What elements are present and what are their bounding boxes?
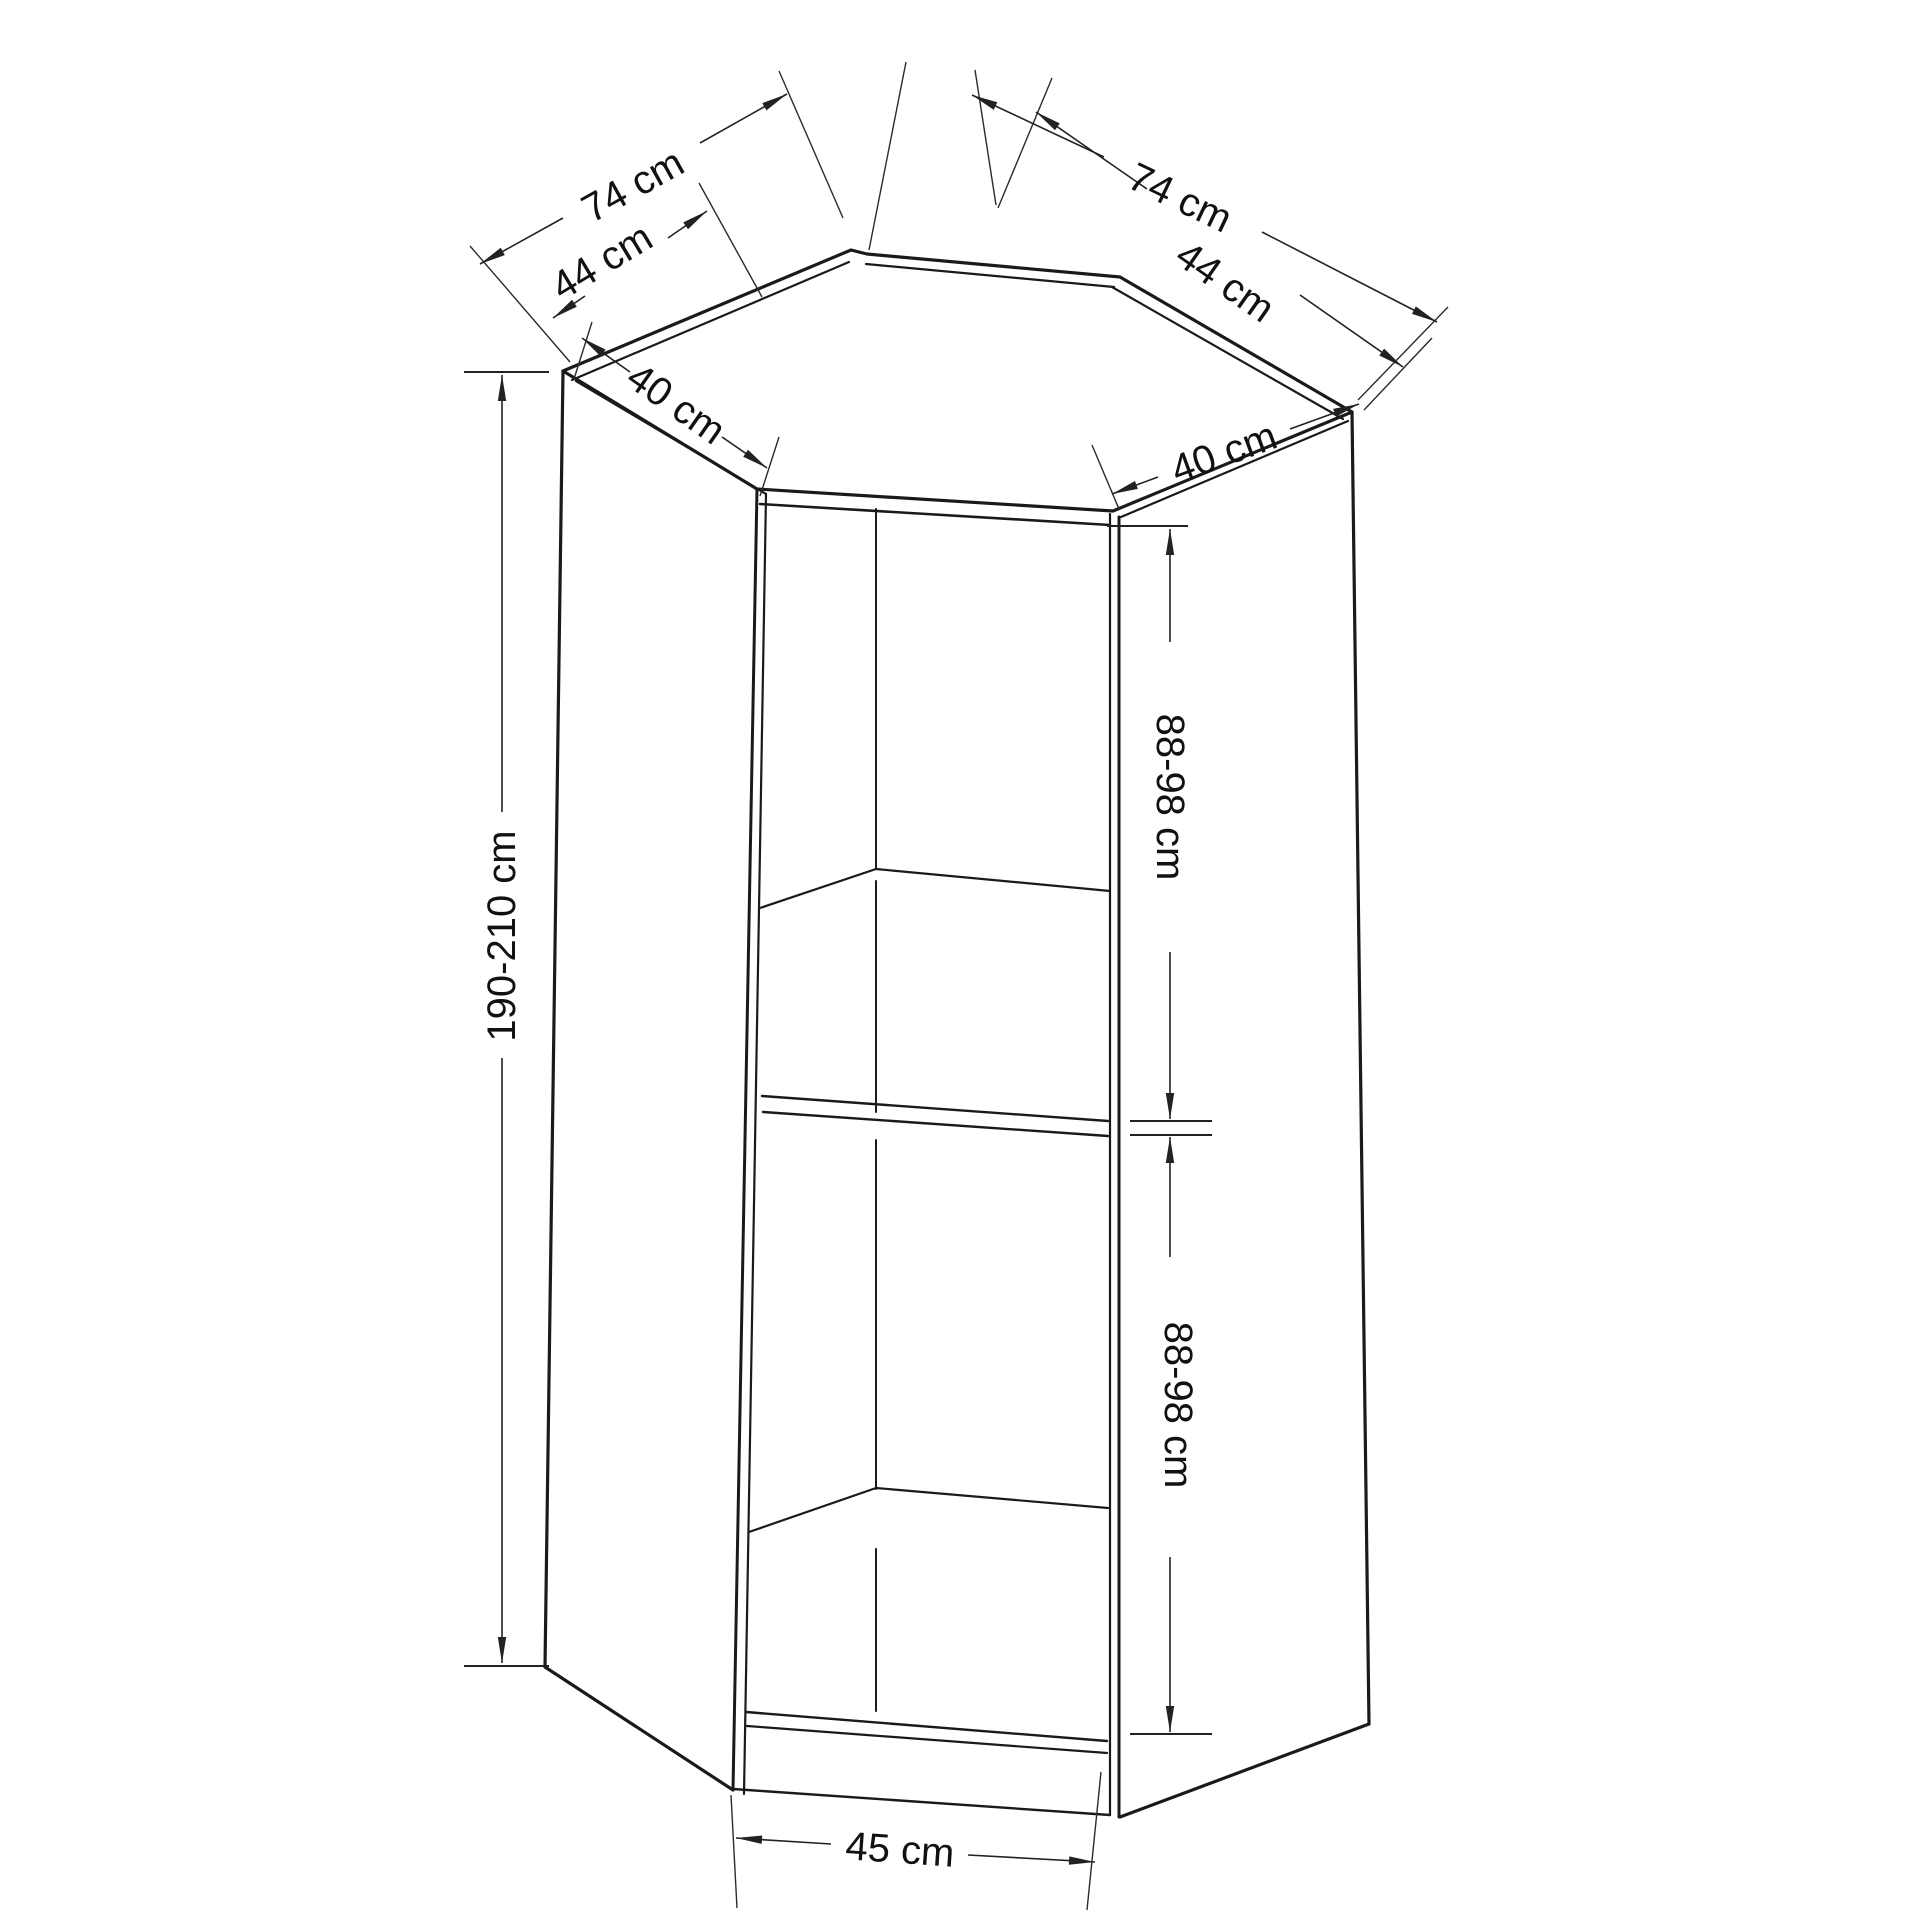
front-left-corner-inner <box>744 495 766 1794</box>
plinth-bottom-edge <box>733 1789 1110 1815</box>
dimline-44-right-b <box>1300 295 1403 367</box>
extension-40-left-bottom <box>760 437 779 496</box>
bottom-panel-thickness-edge <box>747 1726 1107 1753</box>
extension-back-corner-left-a <box>779 71 843 218</box>
label-opening-width: 45 cm <box>844 1824 956 1875</box>
dimline-40-right-a <box>1112 477 1158 494</box>
cabinet-body <box>545 250 1369 1817</box>
extension-40-left-top <box>574 322 592 379</box>
left-panel-bottom-edge <box>545 1667 733 1790</box>
dimline-45-a <box>736 1838 831 1844</box>
corner-wardrobe-diagram: 74 cm 44 cm 40 cm 74 cm 44 cm 40 cm 190-… <box>0 0 1920 1920</box>
dimline-74-left-a <box>480 218 563 264</box>
upper-shelf-front-edge <box>760 869 1110 908</box>
extension-left-vertex <box>470 246 570 362</box>
label-40cm-right: 40 cm <box>1165 414 1282 493</box>
dimline-74-right-a <box>972 95 1104 157</box>
extension-45-left <box>731 1795 737 1908</box>
left-panel-outer-edge <box>545 371 563 1667</box>
middle-divider-bottom-edge <box>763 1112 1108 1136</box>
dimension-drawing-canvas: 74 cm 44 cm 40 cm 74 cm 44 cm 40 cm 190-… <box>0 0 1920 1920</box>
front-left-corner-outer <box>733 489 757 1790</box>
right-panel-outer-edge <box>1352 412 1369 1724</box>
label-74cm-top-right: 74 cm <box>1121 155 1238 242</box>
middle-divider-top-edge <box>762 1096 1108 1121</box>
label-section-lower: 88-98 cm <box>1156 1322 1200 1489</box>
dimline-40-left-a <box>582 338 630 372</box>
extension-44-left <box>699 183 762 297</box>
label-44cm-top-left: 44 cm <box>544 215 660 309</box>
dimline-40-left-b <box>722 437 767 468</box>
dimline-74-right-b <box>1262 232 1437 322</box>
top-edge-back-right-inner <box>866 264 1114 287</box>
extension-back-corner-left-b <box>869 62 906 250</box>
dimline-74-left-b <box>700 94 787 143</box>
extension-right-vertex-44 <box>1364 338 1432 410</box>
extension-45-right <box>1087 1772 1101 1910</box>
right-panel-bottom-edge <box>1120 1724 1369 1817</box>
dimline-44-left-b <box>668 211 707 238</box>
bottom-panel-top-edge <box>746 1712 1107 1741</box>
extension-back-corner-right-a <box>975 70 996 205</box>
extension-40-right-front <box>1092 445 1119 509</box>
extension-lines <box>464 62 1448 1910</box>
lower-shelf-front-edge <box>749 1488 1108 1532</box>
label-height-range: 190-210 cm <box>480 830 524 1041</box>
dimension-labels: 74 cm 44 cm 40 cm 74 cm 44 cm 40 cm 190-… <box>480 140 1283 1875</box>
label-section-upper: 88-98 cm <box>1148 714 1192 881</box>
dimline-45-b <box>968 1855 1095 1862</box>
extension-back-corner-right-b <box>998 78 1052 208</box>
